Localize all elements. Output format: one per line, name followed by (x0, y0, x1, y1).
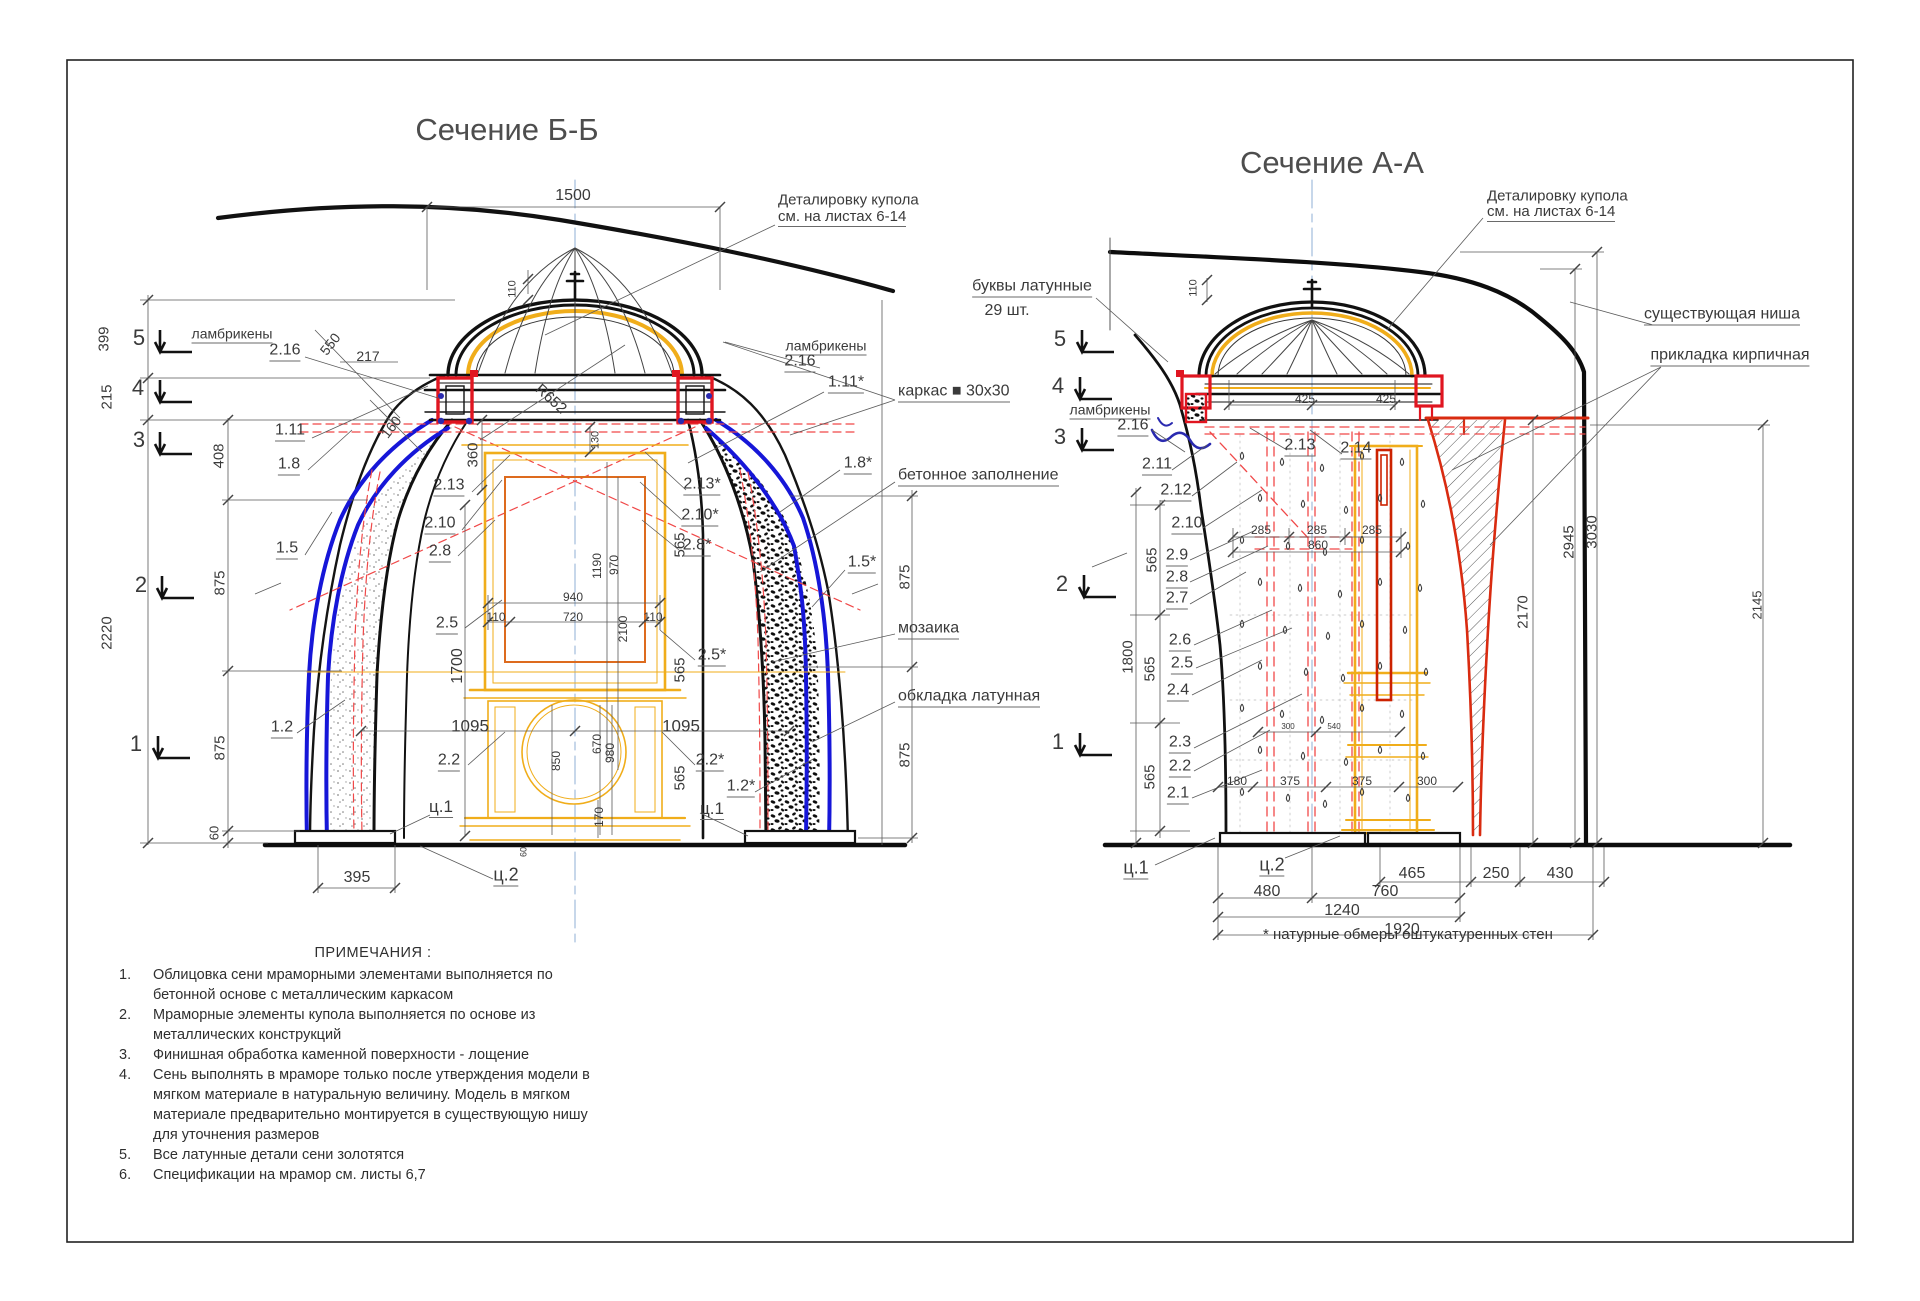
dim-label: ц.1 (429, 798, 453, 818)
dim-label: 60 (520, 847, 529, 857)
dim-label: 1700 (450, 648, 466, 684)
level-mark: 5 (1054, 328, 1066, 350)
dim-label: 2.14 (1340, 441, 1371, 460)
dim-label: 2.2* (696, 753, 724, 772)
callout-existing-niche: существующая ниша (1644, 307, 1800, 326)
dim-label: 430 (1547, 866, 1574, 882)
note-text: Мраморные элементы купола выполняется по… (153, 1005, 605, 1045)
dim-label: 2.10 (424, 516, 455, 535)
dim-label: 2.9 (1166, 548, 1188, 567)
dim-label: 285 (1251, 524, 1271, 536)
callout-dome-detail: Деталировку купола (778, 193, 919, 208)
dim-label: 2.5 (436, 616, 458, 635)
dim-label: ц.2 (493, 866, 518, 887)
dim-label: 875 (213, 735, 228, 760)
dim-label: 2100 (617, 616, 629, 643)
dim-label: 980 (604, 743, 616, 763)
dim-label: 940 (563, 591, 583, 603)
dim-label: 850 (550, 751, 562, 771)
note-item: 3.Финишная обработка каменной поверхност… (113, 1045, 605, 1065)
note-number: 6. (113, 1165, 153, 1185)
dim-label: 970 (608, 555, 620, 575)
dim-label: 180 (1227, 775, 1247, 787)
dim-label: 2.1 (1167, 786, 1189, 805)
note-item: 6.Спецификации на мрамор см. листы 6,7 (113, 1165, 605, 1185)
dim-label: 1190 (591, 553, 603, 579)
dim-label: 2.8* (683, 538, 711, 557)
note-number: 4. (113, 1065, 153, 1145)
drawing-sheet: Сечение Б-Б Сечение А-А 1500Деталировку … (0, 0, 1920, 1301)
dim-label: 1.11 (275, 423, 305, 442)
note-number: 3. (113, 1045, 153, 1065)
dim-label: 2.8 (1166, 570, 1188, 589)
dim-label: 565 (673, 657, 688, 682)
dim-label: 395 (344, 870, 371, 886)
dim-label: 670 (591, 734, 603, 754)
dim-label: 465 (1399, 866, 1426, 882)
dim-label: 170 (593, 807, 605, 827)
dim-label: 2.8 (429, 544, 451, 563)
callout-frame: каркас ■ 30х30 (898, 384, 1010, 403)
dim-label: 565 (1143, 764, 1158, 789)
dim-label: ц.1 (700, 800, 724, 820)
dim-label: 1.5* (848, 555, 876, 574)
dim-label: 110 (486, 611, 505, 623)
level-mark: 3 (1054, 426, 1066, 448)
note-number: 1. (113, 965, 153, 1005)
red-dashed-lines (1205, 427, 1585, 833)
callout-lambrequins: ламбрикены (192, 327, 273, 344)
dim-label: ц.1 (1123, 859, 1148, 880)
dim-label: 375 (1352, 775, 1372, 787)
dim-label: 2945 (1562, 525, 1577, 558)
dim-label: 360 (466, 442, 481, 467)
notes-title: ПРИМЕЧАНИЯ : (173, 943, 573, 963)
notes-block: ПРИМЕЧАНИЯ : 1.Облицовка сени мраморными… (113, 943, 605, 1185)
callout-brass: обкладка латунная (898, 689, 1040, 708)
dim-label: 2.13* (683, 477, 720, 496)
footnote: * натурные обмеры оштукатуренных стен (1263, 926, 1553, 943)
level-mark: 1 (1052, 731, 1064, 753)
left-drawing-section-bb (218, 180, 905, 945)
dim-label: 2.5 (1171, 656, 1193, 675)
callout-dome-detail: см. на листах 6-14 (778, 209, 906, 227)
level-mark: 4 (132, 377, 144, 399)
dim-label: 3030 (1585, 515, 1600, 548)
dim-label: 2.3 (1169, 735, 1191, 754)
dim-label: 217 (356, 349, 379, 363)
notes-items: 1.Облицовка сени мраморными элементами в… (113, 965, 605, 1185)
dim-label: 2.5* (698, 648, 726, 667)
dim-label: 2.10 (1171, 516, 1202, 535)
callout-concrete: бетонное заполнение (898, 468, 1059, 487)
note-text: Облицовка сени мраморными элементами вып… (153, 965, 605, 1005)
note-number: 2. (113, 1005, 153, 1045)
note-item: 1.Облицовка сени мраморными элементами в… (113, 965, 605, 1005)
dim-label: 425 (1376, 393, 1396, 405)
callout-dome-detail: Деталировку купола (1487, 189, 1628, 204)
dim-label: 2.16 (269, 343, 300, 362)
dim-label: 1.2 (271, 720, 293, 739)
dim-label: 300 (1417, 775, 1437, 787)
dim-label: ц.2 (1259, 856, 1284, 877)
dim-label: 2.7 (1166, 591, 1188, 610)
note-item: 5.Все латунные детали сени золотятся (113, 1145, 605, 1165)
right-drawing-section-aa (1105, 180, 1790, 850)
dim-label: 425 (1295, 393, 1315, 405)
dim-label: 2.2 (438, 753, 460, 772)
dim-label: 60 (208, 826, 221, 840)
dim-label: 2220 (100, 616, 115, 649)
dim-label: 1.11* (828, 375, 864, 394)
note-item: 2.Мраморные элементы купола выполняется … (113, 1005, 605, 1045)
dim-label: 1.8* (844, 456, 872, 475)
level-mark: 2 (1056, 573, 1068, 595)
dim-label: 110 (1189, 279, 1200, 297)
dim-label: 540 (1327, 723, 1340, 731)
dim-label: 250 (1483, 866, 1510, 882)
dim-label: 1.8 (278, 457, 300, 476)
dim-label: 285 (1307, 524, 1327, 536)
dim-label: 2.11 (1142, 457, 1172, 476)
dim-label: 215 (100, 384, 115, 409)
dim-label: 1.5 (276, 541, 298, 560)
dim-label: 860 (1308, 539, 1328, 551)
dim-label: 1800 (1121, 640, 1136, 673)
level-mark: 5 (133, 327, 145, 349)
dim-label: 565 (1143, 656, 1158, 681)
dim-label: 300 (1281, 723, 1294, 731)
note-item: 4.Сень выполнять в мраморе только после … (113, 1065, 605, 1145)
dim-label: 1240 (1324, 903, 1360, 919)
dim-label: 399 (97, 326, 112, 351)
level-mark: 3 (133, 429, 145, 451)
cross-finial (1304, 280, 1320, 308)
callout-brass-letters-qty: 29 шт. (984, 303, 1029, 319)
dim-label: 375 (1280, 775, 1300, 787)
dim-label: 2.2 (1169, 759, 1191, 778)
dome-ribs (478, 248, 672, 373)
dim-label: 130 (591, 431, 602, 449)
note-text: Все латунные детали сени золотятся (153, 1145, 605, 1165)
level-mark: 4 (1052, 375, 1064, 397)
dim-label: 565 (673, 765, 688, 790)
dome (448, 248, 702, 375)
note-text: Финишная обработка каменной поверхности … (153, 1045, 605, 1065)
dim-label: 1095 (662, 718, 700, 735)
note-text: Спецификации на мрамор см. листы 6,7 (153, 1165, 605, 1185)
dim-label: 1500 (555, 188, 591, 204)
note-number: 5. (113, 1145, 153, 1165)
dim-label: 875 (213, 570, 228, 595)
dim-label: 2145 (1751, 591, 1764, 620)
callout-brickwork: прикладка кирпичная (1650, 348, 1809, 367)
dim-label: 480 (1254, 884, 1281, 900)
dim-label: 720 (563, 611, 583, 623)
dim-label: 565 (1145, 547, 1160, 572)
dim-label: 285 (1362, 524, 1382, 536)
dim-label: 1.2* (727, 779, 755, 798)
mosaic-anchor-symbols (1240, 452, 1427, 808)
callout-dome-detail: см. на листах 6-14 (1487, 204, 1615, 222)
level-mark: 2 (135, 574, 147, 596)
dome (1199, 280, 1425, 376)
entablature (1196, 376, 1440, 420)
dim-label: 875 (898, 742, 913, 767)
callout-brass-letters: буквы латунные (972, 279, 1092, 298)
cross-finial (567, 272, 583, 300)
dim-label: 110 (508, 280, 519, 298)
dim-label: 2.4 (1167, 683, 1189, 702)
dim-label: 2.16 (1117, 418, 1148, 437)
dim-label: 1095 (451, 718, 489, 735)
base-slab-left (295, 831, 395, 843)
base-slab-right (745, 831, 855, 843)
dim-label: 2.12 (1160, 483, 1191, 502)
dim-label: 2.16 (784, 354, 815, 373)
dim-label: 408 (212, 443, 227, 468)
dim-label: 2.13 (433, 478, 464, 497)
dim-label: 2.10* (681, 508, 718, 527)
level-mark: 1 (130, 733, 142, 755)
dim-label: 875 (898, 564, 913, 589)
note-text: Сень выполнять в мраморе только после ут… (153, 1065, 605, 1145)
dim-label: 2170 (1516, 595, 1531, 628)
callout-mosaic: мозаика (898, 621, 959, 640)
dim-label: 110 (643, 611, 662, 623)
right-section-title: Сечение А-А (1240, 145, 1424, 181)
dim-label: 2.13 (1284, 438, 1315, 457)
left-section-title: Сечение Б-Б (415, 112, 598, 148)
dim-label: 2.6 (1169, 633, 1191, 652)
dim-label: 760 (1372, 884, 1399, 900)
